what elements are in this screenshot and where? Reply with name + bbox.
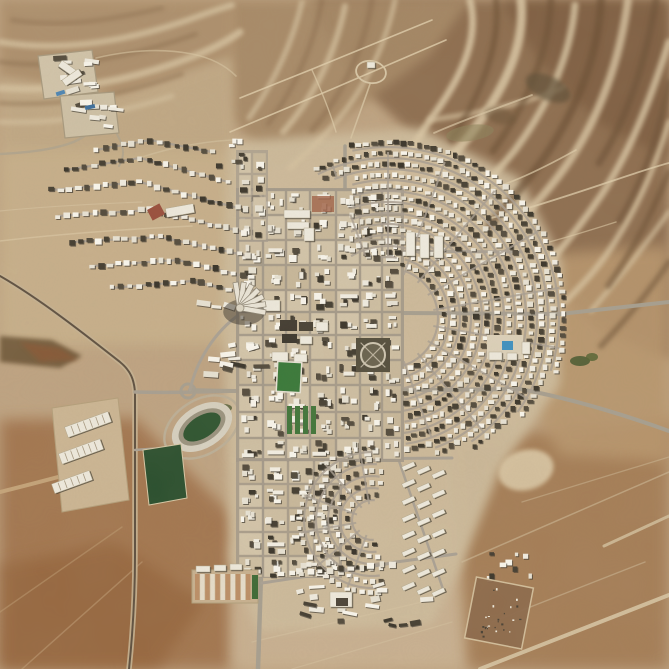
grain-texture — [0, 0, 669, 669]
satellite-view — [0, 0, 669, 669]
satellite-screenshot — [0, 0, 669, 669]
